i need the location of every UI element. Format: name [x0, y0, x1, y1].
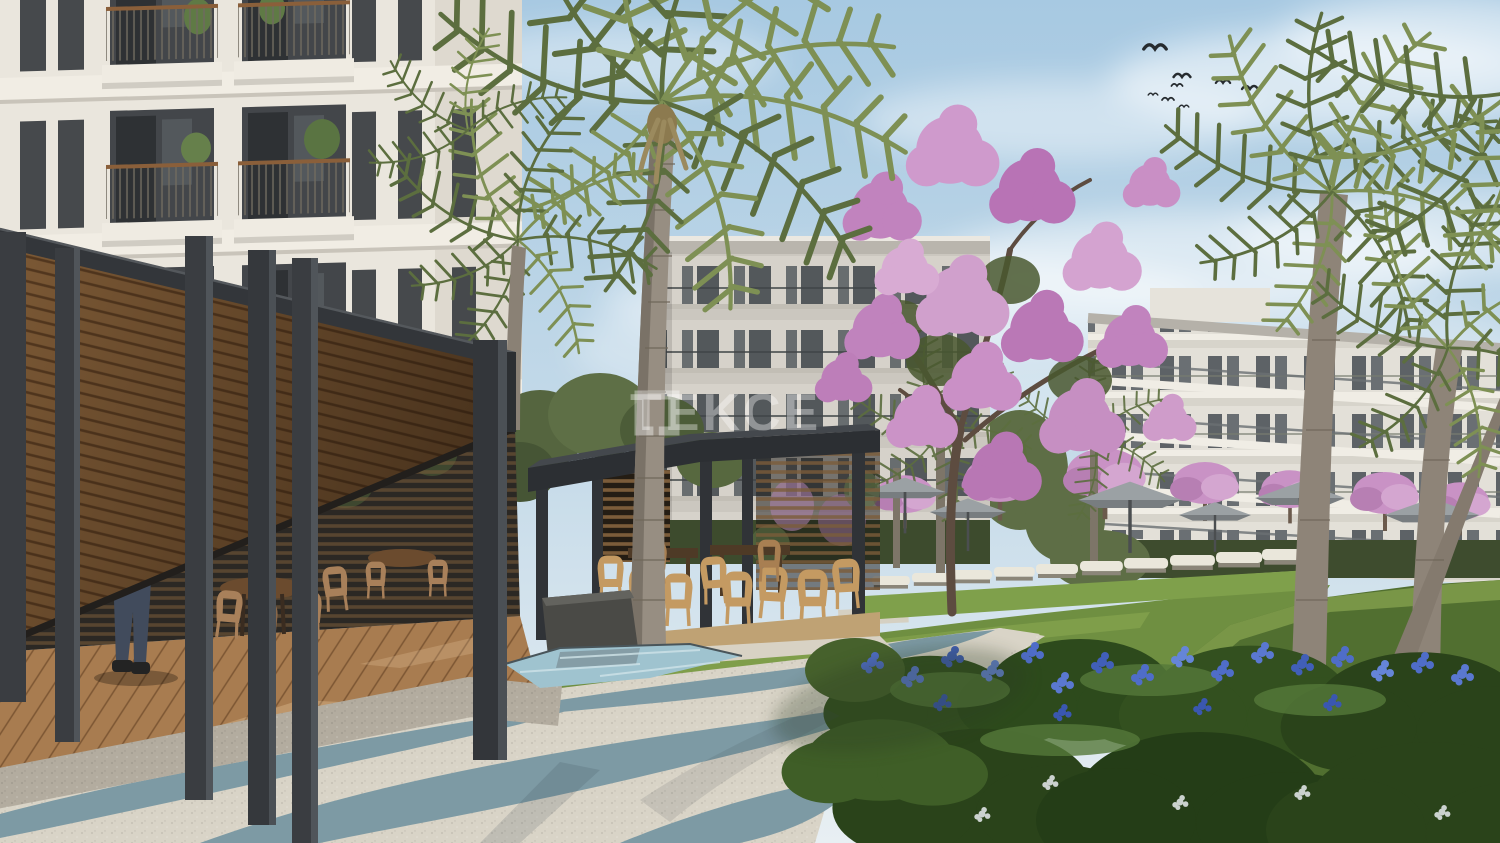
pergola-column: [0, 232, 26, 702]
pergola-column: [292, 258, 318, 843]
pergola-column: [185, 236, 213, 800]
pergola-column: [55, 248, 80, 742]
scene-canvas: [0, 0, 1500, 843]
render-image: TEKCE: [0, 0, 1500, 843]
pergola-column: [473, 340, 507, 760]
pergola-column: [248, 250, 276, 825]
